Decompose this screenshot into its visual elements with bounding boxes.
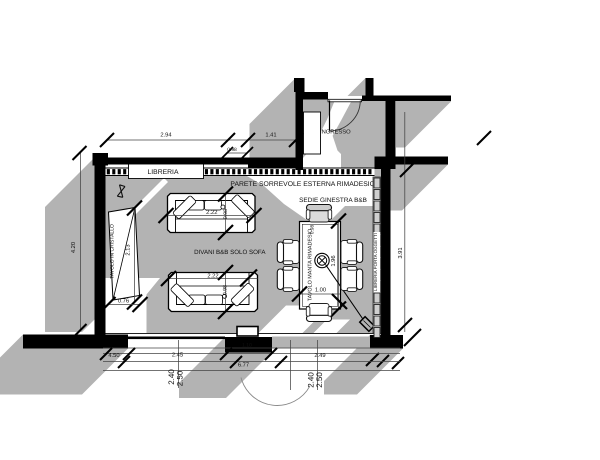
svg-text:2.94: 2.94 — [160, 132, 172, 139]
svg-text:PARETE SORREVOLE ESTERNA RIMAD: PARETE SORREVOLE ESTERNA RIMADESIO — [230, 181, 375, 188]
svg-text:0.98: 0.98 — [310, 225, 315, 235]
svg-text:0.98: 0.98 — [227, 147, 237, 153]
svg-text:TAVOLO MANTA RIMADESIO: TAVOLO MANTA RIMADESIO — [308, 229, 314, 301]
svg-text:0.98: 0.98 — [223, 209, 229, 219]
svg-text:6.77: 6.77 — [238, 362, 249, 369]
svg-text:INGRESSO: INGRESSO — [320, 128, 351, 135]
svg-text:SEDIE GINESTRA B&B: SEDIE GINESTRA B&B — [299, 197, 367, 204]
svg-text:1.00: 1.00 — [315, 287, 326, 294]
svg-text:TAVOLO IN CRISTALLO: TAVOLO IN CRISTALLO — [110, 224, 116, 279]
svg-text:2.50: 2.50 — [176, 370, 185, 386]
svg-text:1.96: 1.96 — [330, 255, 337, 266]
svg-text:2.22: 2.22 — [206, 209, 217, 216]
svg-text:2.49: 2.49 — [314, 352, 325, 359]
svg-text:LIBRERIA PORTA OGGETTI: LIBRERIA PORTA OGGETTI — [373, 233, 378, 291]
svg-text:3.91: 3.91 — [397, 247, 404, 258]
svg-text:2.50: 2.50 — [315, 372, 324, 388]
svg-text:1.10: 1.10 — [242, 343, 252, 349]
svg-text:LIBRERIA: LIBRERIA — [148, 169, 179, 176]
svg-text:4.20: 4.20 — [70, 242, 77, 253]
svg-text:4.50: 4.50 — [108, 352, 119, 359]
svg-text:2.45: 2.45 — [172, 352, 183, 359]
svg-text:2.22: 2.22 — [207, 273, 218, 280]
svg-text:1.41: 1.41 — [265, 133, 276, 139]
svg-text:0.76: 0.76 — [118, 298, 129, 305]
svg-text:2.13: 2.13 — [125, 244, 132, 255]
svg-text:0.98: 0.98 — [223, 285, 229, 295]
svg-text:DIVANI B&B SOLO SOFA: DIVANI B&B SOLO SOFA — [194, 249, 266, 256]
